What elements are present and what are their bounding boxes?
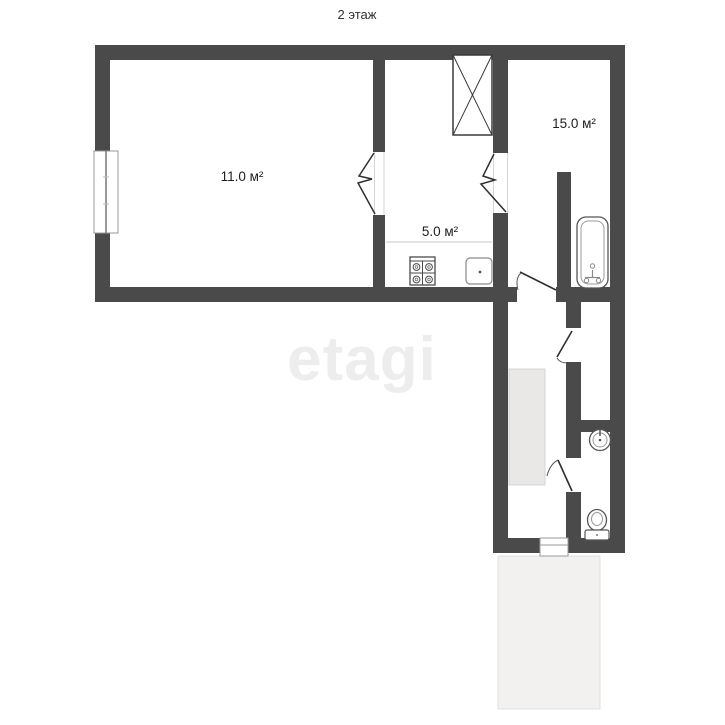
window-icon (94, 151, 118, 233)
wall-wing-mid-a (566, 302, 581, 328)
wall-kitchen-right-upper (493, 60, 508, 153)
wall-passage-stub (508, 287, 517, 302)
door-swing-wc (547, 460, 572, 491)
toilet-icon (585, 510, 609, 541)
washbasin-icon (590, 430, 611, 451)
wall-wing-mid-c (566, 492, 581, 538)
wall-room-kitchen-upper (373, 60, 385, 152)
wall-wing-left (493, 213, 508, 553)
threshold-doorway (540, 538, 568, 556)
room-label-1: 11.0 м² (221, 169, 264, 184)
floor-title: 2 этаж (338, 7, 377, 22)
wall-right-outer (610, 45, 625, 553)
door-swing-hall (517, 272, 556, 290)
wall-wing-bottom-left (493, 538, 540, 553)
room-label-kitchen: 5.0 м² (422, 224, 459, 239)
kitchen-sink-icon (466, 258, 492, 284)
floor-plan-page: 2 этаж etagi (0, 0, 725, 725)
wall-room-kitchen-lower (373, 215, 385, 287)
wall-left-upper (95, 60, 110, 152)
room-label-2: 15.0 м² (552, 116, 596, 131)
bathtub-icon (577, 217, 608, 288)
watermark: etagi (287, 325, 437, 394)
built-in-closet (509, 369, 545, 485)
ventilation-shaft-icon (453, 55, 492, 135)
stove-icon (410, 257, 435, 285)
wall-top (95, 45, 625, 60)
opening-break-kitchen-hall (481, 153, 508, 213)
wall-bath-nook (557, 172, 571, 302)
wall-bottom-right (556, 287, 610, 302)
opening-break-room-kitchen (358, 152, 384, 215)
door-swing-storage (557, 331, 572, 363)
floor-plan: 2 этаж etagi (0, 0, 725, 725)
wall-bottom-main (95, 287, 493, 302)
wall-wing-mid-b (566, 362, 581, 458)
balcony (498, 556, 600, 709)
